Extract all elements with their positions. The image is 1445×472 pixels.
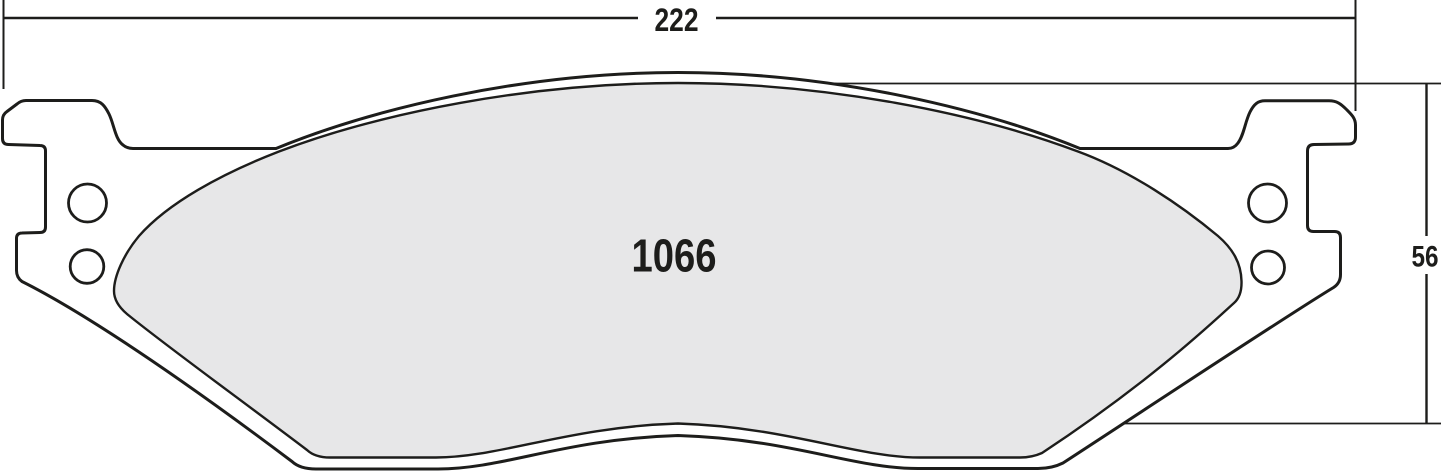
part-number-label: 1066 [632, 230, 717, 282]
height-dimension-label: 56 [1412, 241, 1439, 274]
brake-pad-diagram: 222 56 1066 [0, 0, 1445, 472]
left-upper-hole [69, 184, 107, 222]
right-upper-hole [1249, 184, 1287, 222]
technical-drawing-canvas: 222 56 1066 [0, 0, 1445, 472]
drawing-root: 222 56 1066 [3, 0, 1442, 469]
right-lower-hole [1252, 251, 1285, 284]
width-dimension-label: 222 [655, 2, 699, 38]
left-lower-hole [70, 250, 104, 284]
